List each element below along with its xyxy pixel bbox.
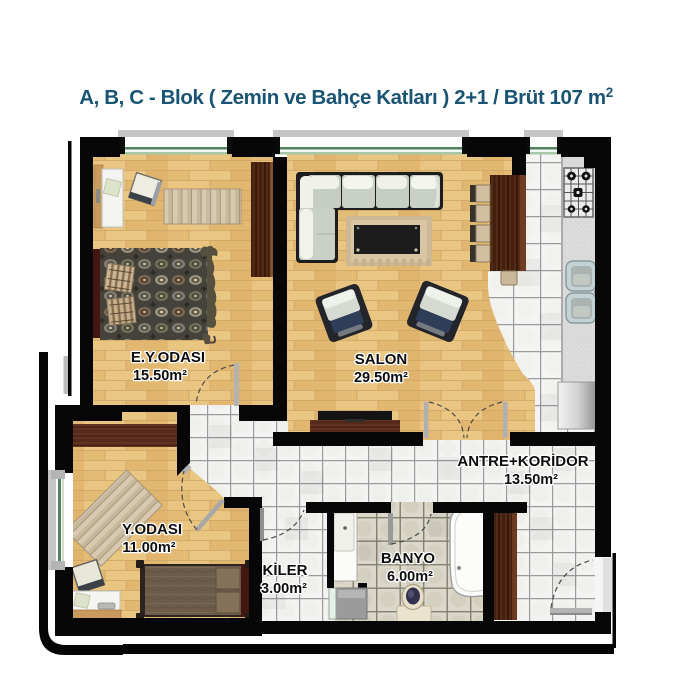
svg-text:3.00m²: 3.00m² xyxy=(261,581,307,597)
svg-text:11.00m²: 11.00m² xyxy=(122,540,175,556)
svg-text:15.50m²: 15.50m² xyxy=(133,368,187,384)
svg-text:13.50m²: 13.50m² xyxy=(504,472,558,488)
svg-text:6.00m²: 6.00m² xyxy=(387,569,433,585)
svg-text:ANTRE+KORİDOR: ANTRE+KORİDOR xyxy=(457,453,588,470)
svg-text:BANYO: BANYO xyxy=(381,550,436,567)
svg-text:A, B, C - Blok ( Zemin ve Bahç: A, B, C - Blok ( Zemin ve Bahçe Katları … xyxy=(79,85,613,109)
svg-text:SALON: SALON xyxy=(355,351,408,368)
svg-text:KİLER: KİLER xyxy=(263,562,308,579)
svg-text:E.Y.ODASI: E.Y.ODASI xyxy=(131,349,205,366)
svg-text:Y.ODASI: Y.ODASI xyxy=(122,521,182,538)
svg-text:29.50m²: 29.50m² xyxy=(354,370,408,386)
